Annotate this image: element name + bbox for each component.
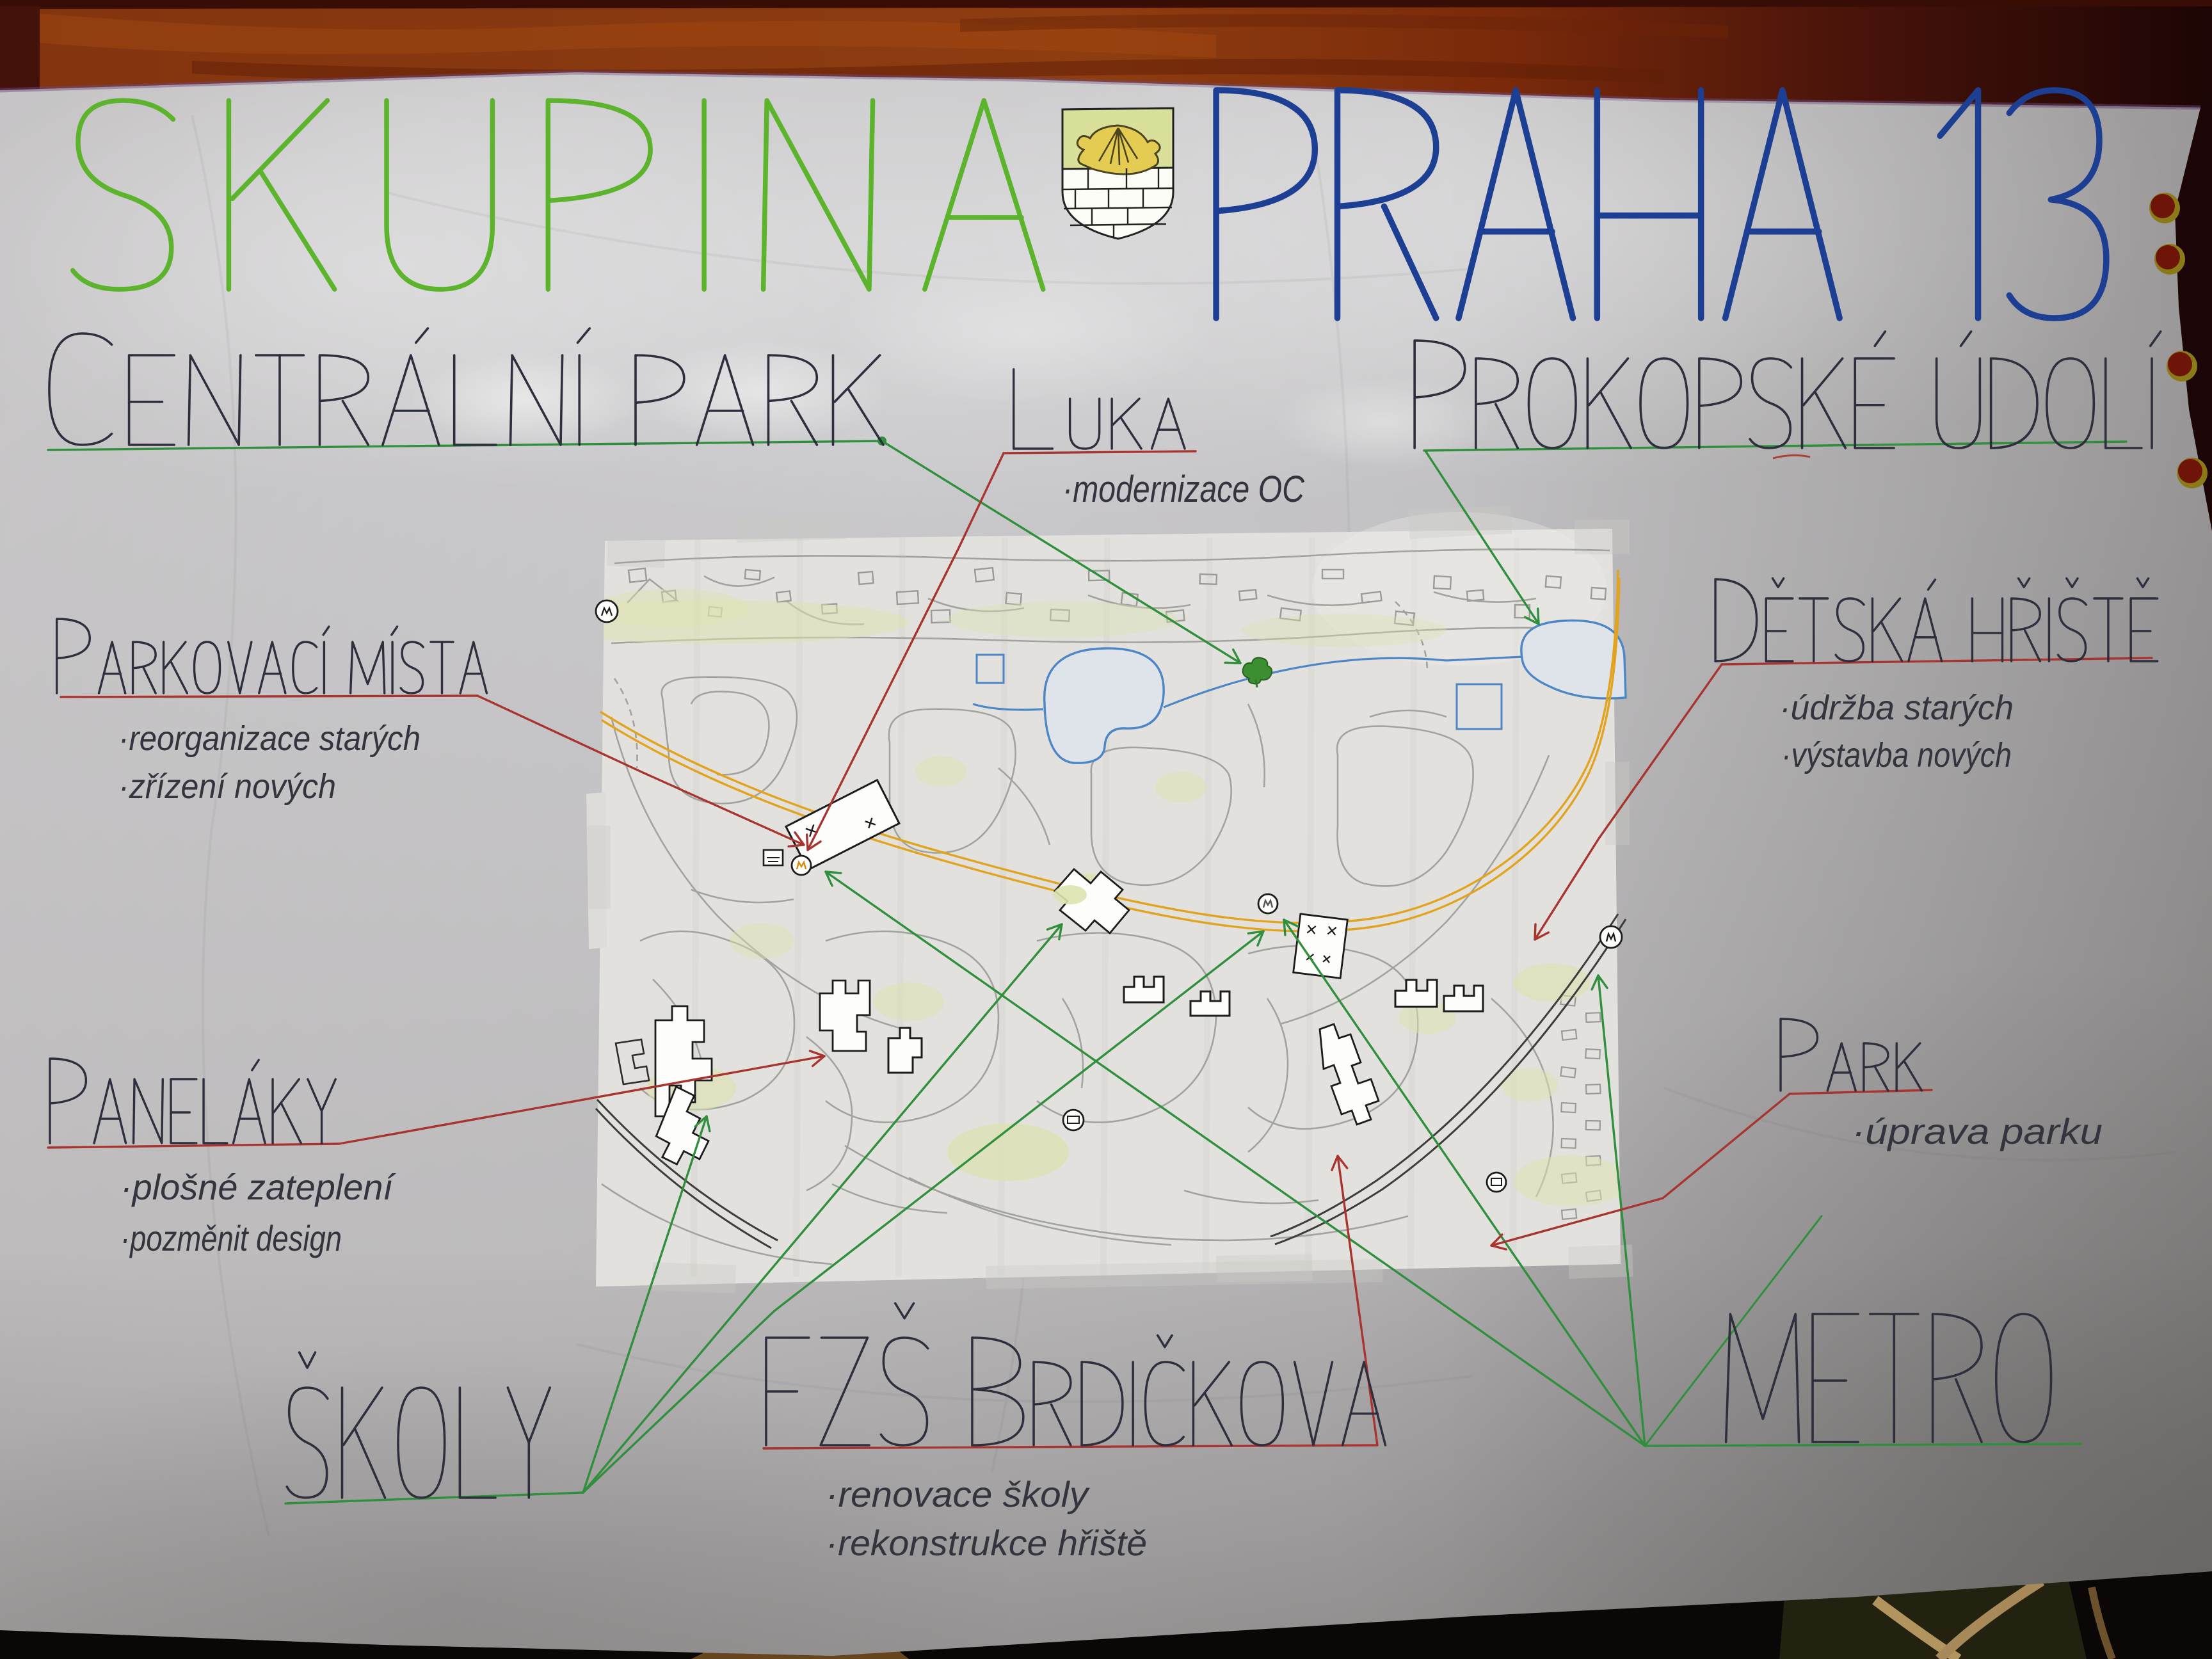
svg-text:·modernizace OC: ·modernizace OC — [1062, 469, 1305, 510]
svg-text:·výstavba nových: ·výstavba nových — [1781, 736, 2012, 774]
svg-text:·rekonstrukce hřiště: ·rekonstrukce hřiště — [826, 1523, 1147, 1563]
svg-text:·plošné zateplení: ·plošné zateplení — [120, 1167, 396, 1207]
svg-text:·reorganizace starých: ·reorganizace starých — [118, 719, 421, 758]
svg-text:·zřízení nových: ·zřízení nových — [118, 767, 336, 806]
svg-text:·renovace školy: ·renovace školy — [826, 1474, 1090, 1514]
svg-text:·pozměnit design: ·pozměnit design — [120, 1218, 342, 1258]
svg-text:·údržba starých: ·údržba starých — [1779, 689, 2014, 727]
svg-text:·úprava parku: ·úprava parku — [1852, 1111, 2103, 1151]
